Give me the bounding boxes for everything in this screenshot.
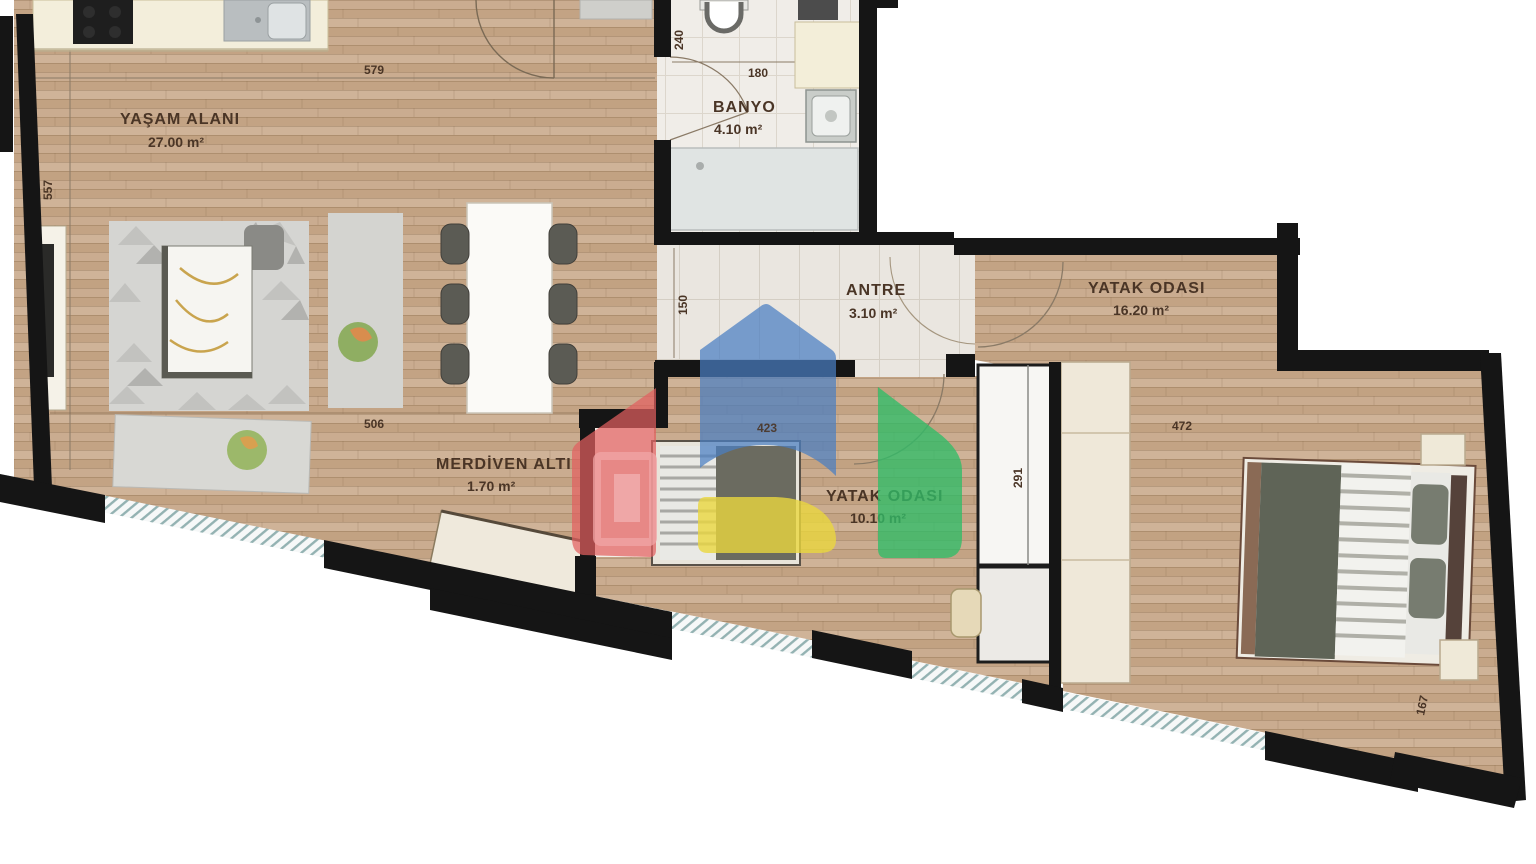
svg-text:ANTRE: ANTRE [846,282,906,299]
svg-text:423: 423 [757,421,777,435]
svg-text:1.70 m²: 1.70 m² [467,478,516,494]
svg-text:557: 557 [41,180,55,200]
svg-text:27.00 m²: 27.00 m² [148,134,204,150]
svg-text:506: 506 [364,417,384,431]
svg-text:472: 472 [1172,419,1192,433]
svg-text:YAŞAM ALANI: YAŞAM ALANI [120,111,240,128]
svg-text:MERDİVEN ALTI: MERDİVEN ALTI [436,455,572,473]
svg-text:YATAK ODASI: YATAK ODASI [1088,280,1205,297]
svg-text:240: 240 [672,30,686,50]
svg-text:4.10 m²: 4.10 m² [714,121,763,137]
svg-text:150: 150 [676,295,690,315]
svg-text:BANYO: BANYO [713,99,776,116]
svg-text:16.20 m²: 16.20 m² [1113,302,1169,318]
svg-text:579: 579 [364,63,384,77]
svg-text:180: 180 [748,66,768,80]
svg-text:3.10 m²: 3.10 m² [849,305,898,321]
svg-text:291: 291 [1011,468,1025,488]
